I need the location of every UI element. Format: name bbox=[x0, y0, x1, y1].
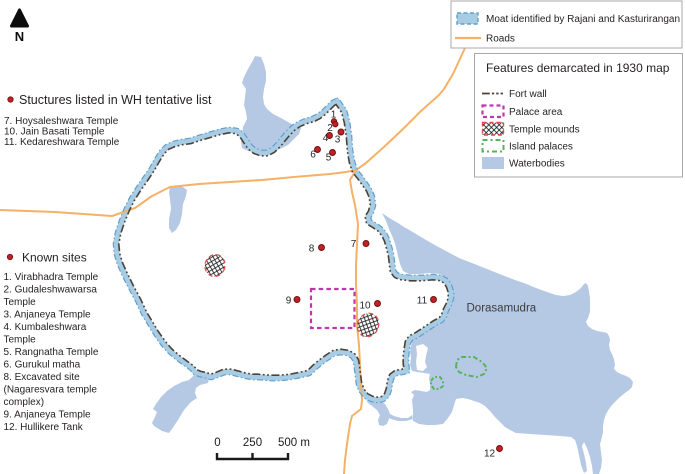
svg-text:Palace area: Palace area bbox=[509, 107, 563, 118]
svg-text:8. Excavated site: 8. Excavated site bbox=[4, 372, 81, 383]
svg-text:3. Anjaneya Temple: 3. Anjaneya Temple bbox=[4, 310, 92, 321]
svg-text:500 m: 500 m bbox=[278, 437, 310, 449]
svg-text:Temple: Temple bbox=[4, 297, 37, 308]
svg-text:7. Hoysaleshwara Temple: 7. Hoysaleshwara Temple bbox=[4, 116, 119, 127]
svg-text:7: 7 bbox=[351, 239, 357, 250]
svg-text:Fort wall: Fort wall bbox=[509, 89, 547, 100]
svg-text:2. Gudaleshwawarsa: 2. Gudaleshwawarsa bbox=[4, 285, 98, 296]
svg-text:Roads: Roads bbox=[486, 34, 515, 45]
svg-text:4. Kumbaleshwara: 4. Kumbaleshwara bbox=[4, 322, 87, 333]
svg-text:3: 3 bbox=[335, 135, 341, 146]
svg-text:6: 6 bbox=[310, 150, 316, 161]
svg-text:8: 8 bbox=[309, 244, 315, 255]
svg-text:12: 12 bbox=[484, 449, 496, 460]
svg-text:6. Gurukul matha: 6. Gurukul matha bbox=[4, 360, 81, 371]
svg-text:5. Rangnatha Temple: 5. Rangnatha Temple bbox=[4, 347, 99, 358]
svg-text:0: 0 bbox=[214, 437, 220, 449]
svg-text:(Nagaresvara temple: (Nagaresvara temple bbox=[4, 385, 98, 396]
svg-text:Island palaces: Island palaces bbox=[509, 141, 573, 152]
svg-text:Moat identified by Rajani and: Moat identified by Rajani and Kasturiran… bbox=[486, 14, 680, 25]
svg-text:Features demarcated in 1930 ma: Features demarcated in 1930 map bbox=[486, 61, 670, 75]
svg-text:1: 1 bbox=[331, 110, 337, 121]
svg-text:1. Virabhadra Temple: 1. Virabhadra Temple bbox=[4, 272, 99, 283]
svg-text:11. Kedareshwara Temple: 11. Kedareshwara Temple bbox=[4, 137, 120, 148]
svg-text:250: 250 bbox=[243, 437, 262, 449]
svg-text:10. Jain Basati Temple: 10. Jain Basati Temple bbox=[4, 127, 105, 138]
svg-text:Known sites: Known sites bbox=[22, 251, 87, 265]
svg-text:N: N bbox=[15, 29, 24, 44]
svg-text:Stuctures listed in WH tentati: Stuctures listed in WH tentative list bbox=[19, 93, 212, 107]
svg-text:5: 5 bbox=[326, 153, 332, 164]
svg-text:9: 9 bbox=[286, 296, 292, 307]
svg-text:Waterbodies: Waterbodies bbox=[509, 158, 565, 169]
svg-text:Temple mounds: Temple mounds bbox=[509, 124, 580, 135]
svg-text:Dorasamudra: Dorasamudra bbox=[467, 303, 537, 315]
svg-text:12. Hullikere Tank: 12. Hullikere Tank bbox=[4, 422, 84, 433]
svg-text:complex): complex) bbox=[4, 397, 45, 408]
svg-text:9. Anjaneya Temple: 9. Anjaneya Temple bbox=[4, 410, 92, 421]
svg-text:11: 11 bbox=[417, 296, 428, 307]
svg-text:10: 10 bbox=[359, 301, 371, 312]
svg-text:Temple: Temple bbox=[4, 335, 37, 346]
svg-text:4: 4 bbox=[323, 133, 329, 144]
